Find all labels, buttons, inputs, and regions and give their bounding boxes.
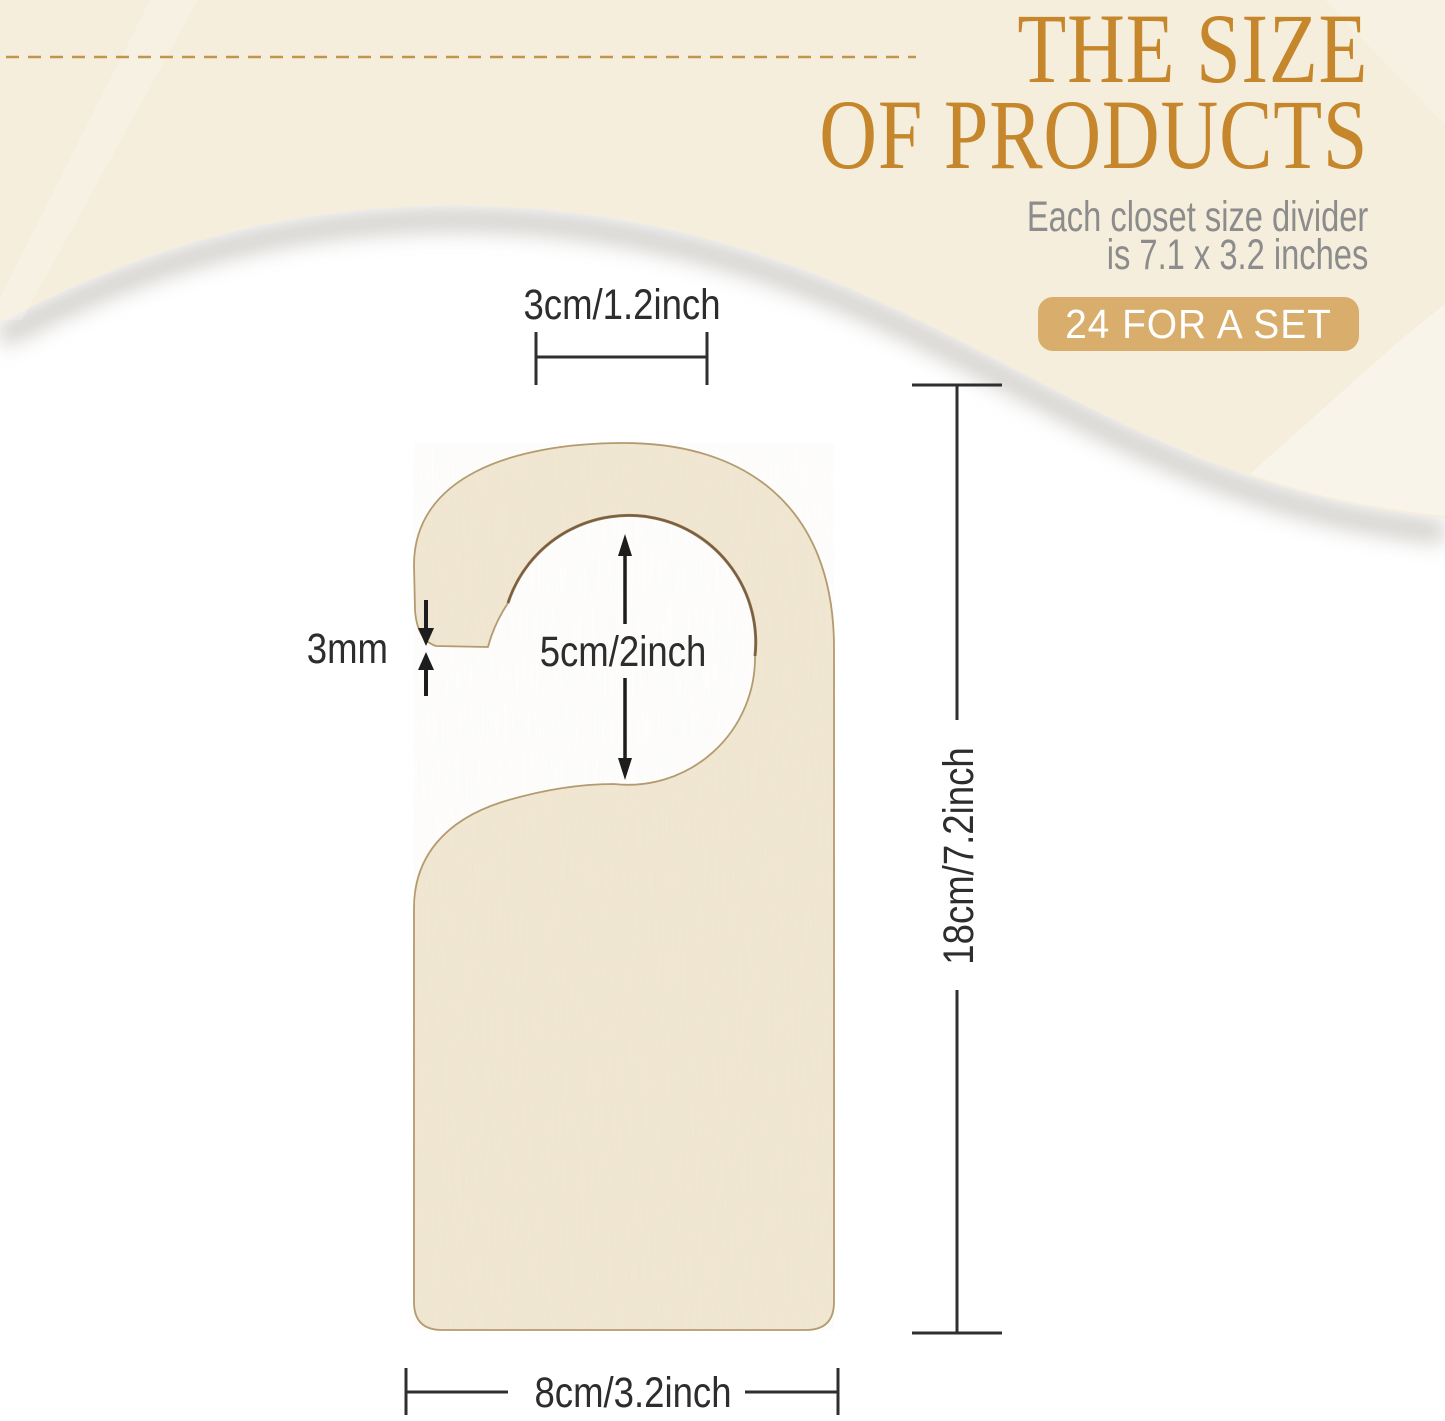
set-count-badge: 24 FOR A SET <box>1038 297 1359 351</box>
total-width-label: 8cm/3.2inch <box>480 1369 786 1418</box>
size-infographic: THE SIZE OF PRODUCTS Each closet size di… <box>0 0 1445 1421</box>
title-line-2: OF PRODUCTS <box>819 92 1368 178</box>
subtitle-line-2: is 7.1 x 3.2 inches <box>1027 236 1368 274</box>
dim-hook-width <box>536 332 707 385</box>
thickness-label: 3mm <box>252 625 388 674</box>
hook-width-label: 3cm/1.2inch <box>469 281 775 330</box>
subtitle: Each closet size divider is 7.1 x 3.2 in… <box>1027 198 1368 274</box>
set-count-badge-label: 24 FOR A SET <box>1046 297 1351 351</box>
page-title: THE SIZE OF PRODUCTS <box>819 6 1368 178</box>
hole-diameter-label: 5cm/2inch <box>470 628 776 677</box>
total-height-label: 18cm/7.2inch <box>935 703 979 1009</box>
